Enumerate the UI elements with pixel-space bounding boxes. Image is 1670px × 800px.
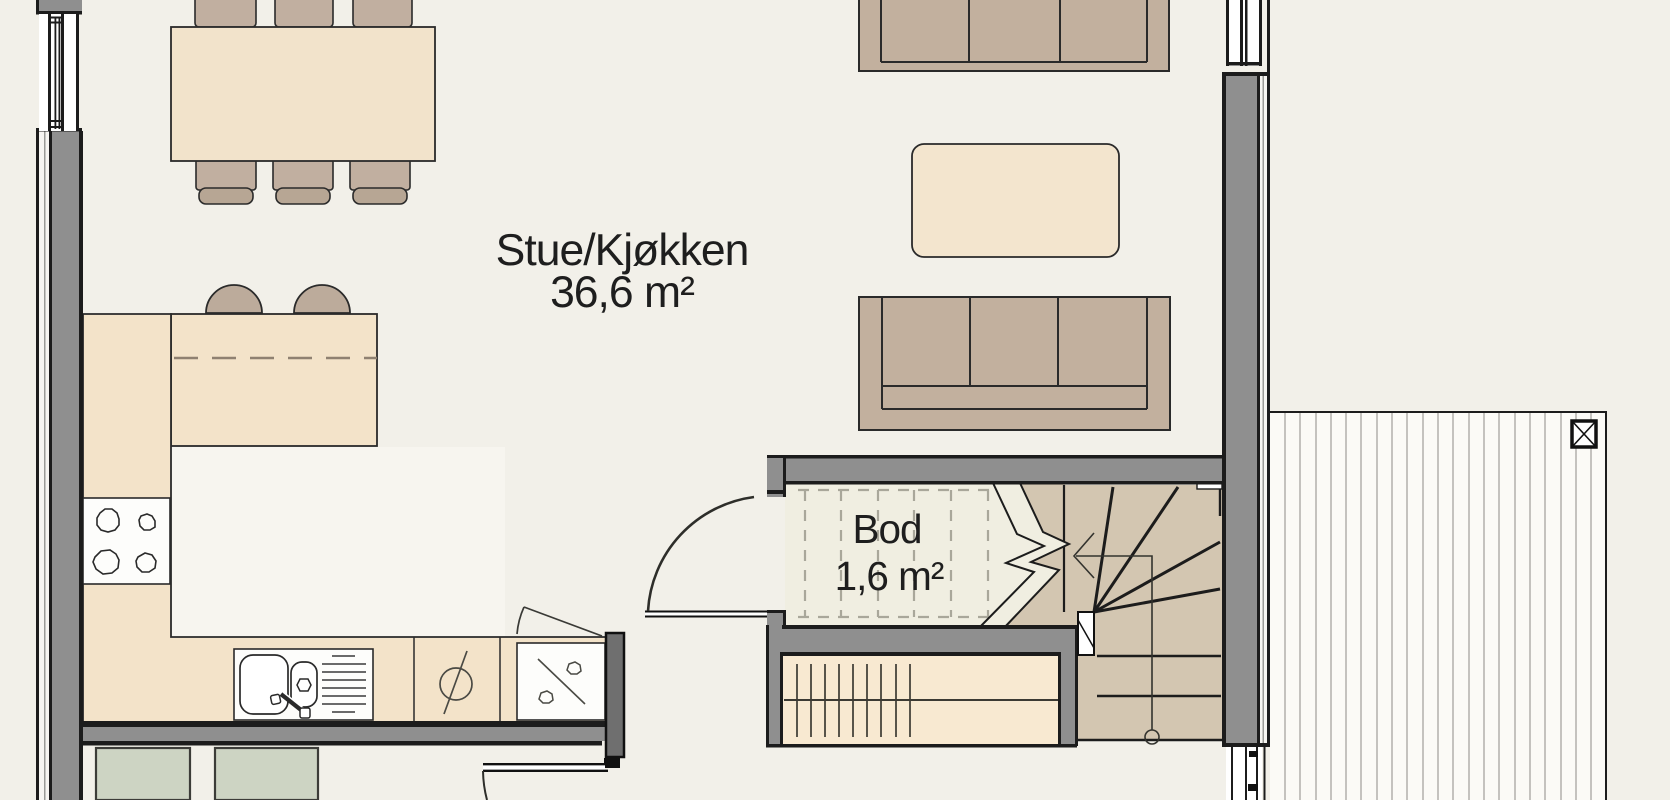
svg-text:1,6 m²: 1,6 m² [835,553,944,599]
svg-text:Bod: Bod [852,506,921,552]
svg-text:36,6 m²: 36,6 m² [550,268,694,317]
